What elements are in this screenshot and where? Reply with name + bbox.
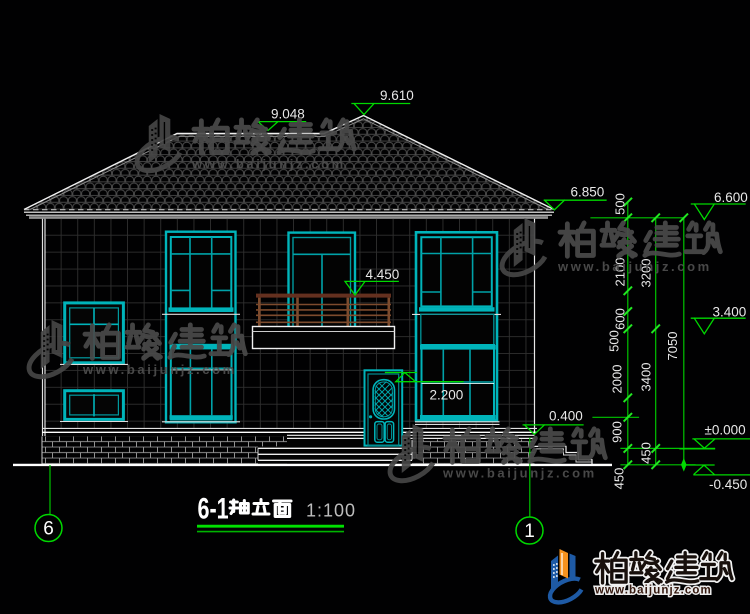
svg-text:www.baijunjz.com: www.baijunjz.com [442,466,597,481]
svg-text:0.400: 0.400 [549,409,583,424]
svg-text:www.baijunjz.com: www.baijunjz.com [191,157,346,172]
svg-text:1: 1 [524,521,535,542]
svg-text:2.200: 2.200 [430,388,464,403]
svg-text:6: 6 [43,519,54,540]
svg-text:500: 500 [613,193,628,215]
svg-text:9.610: 9.610 [380,88,414,103]
svg-text:6.850: 6.850 [571,185,605,200]
svg-text:900: 900 [610,421,625,443]
svg-text:www.baijunjz.com: www.baijunjz.com [82,362,237,377]
svg-text:500: 500 [607,330,622,352]
svg-text:2000: 2000 [610,365,625,394]
svg-text:7050: 7050 [665,332,680,361]
svg-text:-0.450: -0.450 [709,477,747,492]
svg-text:450: 450 [612,468,627,490]
svg-text:www.baijunjz.com: www.baijunjz.com [557,259,712,274]
svg-text:4.450: 4.450 [366,267,400,282]
svg-text:3.400: 3.400 [713,305,747,320]
svg-text:450: 450 [639,442,654,464]
svg-text:±0.000: ±0.000 [705,423,746,438]
svg-text:www.baijunjz.com: www.baijunjz.com [594,585,712,597]
svg-text:1:100: 1:100 [306,501,356,521]
svg-text:3400: 3400 [639,363,654,392]
svg-text:6.600: 6.600 [714,190,748,205]
svg-text:600: 600 [613,308,628,330]
svg-text:6-1: 6-1 [198,493,229,525]
